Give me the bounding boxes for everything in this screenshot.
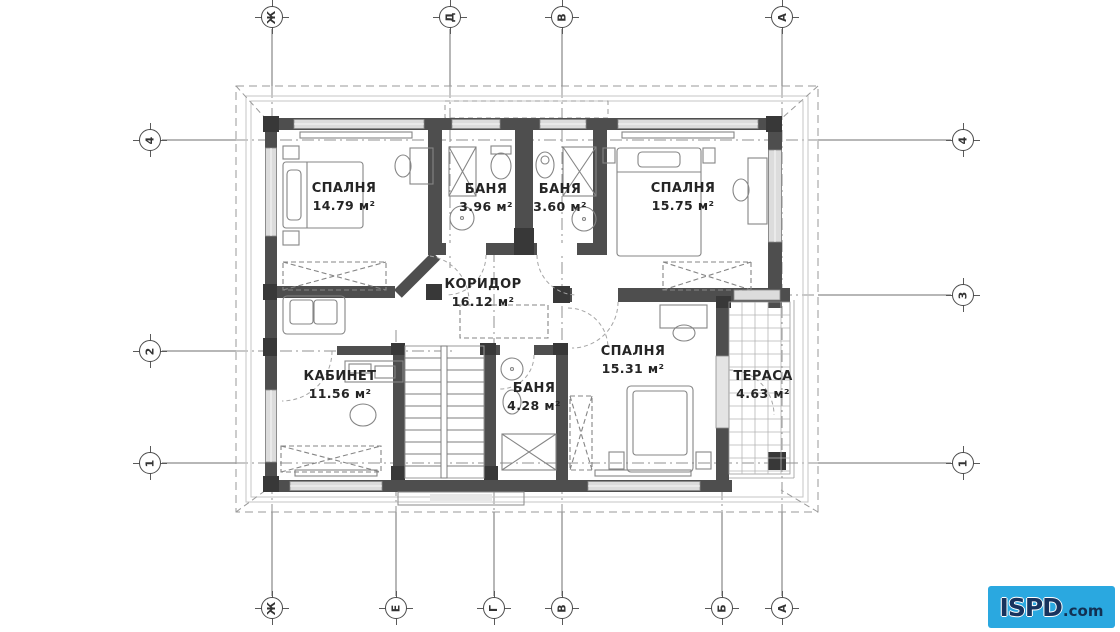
room-area: 4.63 м² <box>733 385 792 402</box>
wardrobe-2 <box>663 262 751 290</box>
room-area: 14.79 м² <box>312 197 377 214</box>
room-name: ТЕРАСА <box>733 368 792 385</box>
chair <box>395 155 411 177</box>
grid-marker-top-zh: Ж <box>259 4 285 30</box>
chair <box>673 325 695 341</box>
desk-2 <box>748 158 767 224</box>
room-label-bedroom-3: СПАЛНЯ 15.31 м² <box>601 343 666 377</box>
floor-plan-drawing <box>0 0 1120 632</box>
shower-3 <box>502 434 556 470</box>
nightstand <box>696 452 711 469</box>
wardrobe-4 <box>570 396 592 470</box>
room-label-bath-1: БАНЯ 3.96 м² <box>459 181 513 215</box>
room-area: 3.96 м² <box>459 198 513 215</box>
room-area: 15.75 м² <box>651 197 716 214</box>
room-name: КАБИНЕТ <box>304 368 377 385</box>
office-chair <box>350 404 376 426</box>
bed-3 <box>627 386 693 472</box>
room-label-corridor: КОРИДОР 16.12 м² <box>444 276 521 310</box>
porch <box>398 492 524 505</box>
nightstand <box>283 231 299 245</box>
logo-suffix: .com <box>1063 602 1104 620</box>
staircase <box>405 346 484 478</box>
nightstand <box>703 148 715 163</box>
grid-marker-stems <box>162 29 951 596</box>
grid-marker-top-a: А <box>769 4 795 30</box>
grid-marker-top-v: В <box>549 4 575 30</box>
nightstand <box>609 452 624 469</box>
grid-marker-bottom-zh: Ж <box>259 595 285 621</box>
room-label-bedroom-2: СПАЛНЯ 15.75 м² <box>651 180 716 214</box>
room-area: 3.60 м² <box>533 198 587 215</box>
grid-marker-left-1: 1 <box>137 450 163 476</box>
room-name: БАНЯ <box>533 181 587 198</box>
grid-marker-top-d: Д <box>437 4 463 30</box>
wardrobe-1 <box>283 262 386 290</box>
floor-plan-canvas: СПАЛНЯ 14.79 м² БАНЯ 3.96 м² БАНЯ 3.60 м… <box>0 0 1120 632</box>
toilet-1 <box>491 153 511 179</box>
grid-marker-bottom-a: А <box>769 595 795 621</box>
radiator <box>595 470 691 476</box>
radiator <box>300 132 412 138</box>
wardrobe-3 <box>281 446 381 472</box>
grid-marker-left-2: 2 <box>137 338 163 364</box>
sink-3 <box>501 358 523 380</box>
room-area: 4.28 м² <box>507 397 561 414</box>
nightstand <box>283 146 299 159</box>
room-name: СПАЛНЯ <box>651 180 716 197</box>
room-label-office: КАБИНЕТ 11.56 м² <box>304 368 377 402</box>
room-area: 15.31 м² <box>601 360 666 377</box>
radiator <box>622 132 734 138</box>
grid-marker-bottom-e: Е <box>383 595 409 621</box>
grid-marker-right-3: 3 <box>950 282 976 308</box>
grid-marker-bottom-g: Г <box>481 595 507 621</box>
ispd-logo[interactable]: ISPD .com <box>988 586 1115 628</box>
room-name: СПАЛНЯ <box>312 180 377 197</box>
room-area: 16.12 м² <box>444 293 521 310</box>
grid-marker-bottom-b: Б <box>709 595 735 621</box>
logo-text: ISPD <box>1000 593 1062 622</box>
room-name: БАНЯ <box>459 181 513 198</box>
radiator <box>295 470 377 476</box>
grid-marker-left-4: 4 <box>137 127 163 153</box>
room-label-bath-2: БАНЯ 3.60 м² <box>533 181 587 215</box>
grid-marker-right-4: 4 <box>950 127 976 153</box>
grid-marker-right-1: 1 <box>950 450 976 476</box>
room-area: 11.56 м² <box>304 385 377 402</box>
grid-marker-bottom-v: В <box>549 595 575 621</box>
room-label-bath-3: БАНЯ 4.28 м² <box>507 380 561 414</box>
room-name: КОРИДОР <box>444 276 521 293</box>
room-label-bedroom-1: СПАЛНЯ 14.79 м² <box>312 180 377 214</box>
room-label-terrace: ТЕРАСА 4.63 м² <box>733 368 792 402</box>
room-name: СПАЛНЯ <box>601 343 666 360</box>
chair <box>733 179 749 201</box>
room-name: БАНЯ <box>507 380 561 397</box>
sofa <box>283 296 345 334</box>
